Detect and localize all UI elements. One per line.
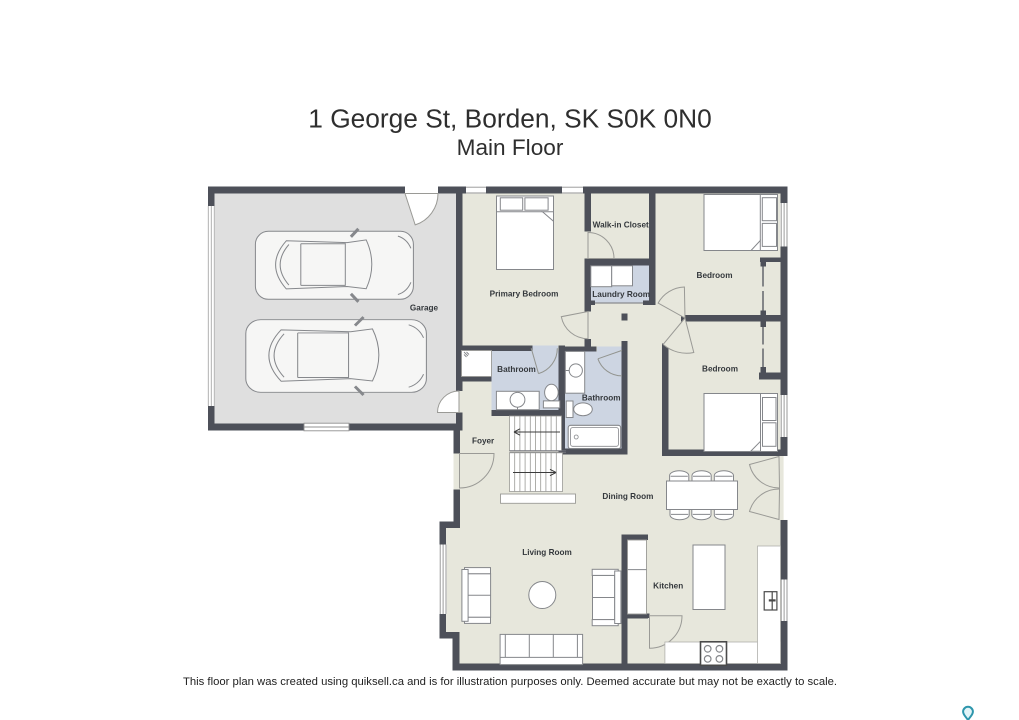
svg-text:Laundry Room: Laundry Room — [592, 290, 650, 299]
svg-text:Garage: Garage — [410, 303, 439, 312]
svg-text:Walk-in Closet: Walk-in Closet — [593, 220, 649, 229]
svg-text:This floor plan was created us: This floor plan was created using quikse… — [183, 676, 837, 688]
svg-text:Bathroom: Bathroom — [582, 393, 621, 402]
svg-text:Living Room: Living Room — [522, 548, 572, 557]
svg-text:Kitchen: Kitchen — [653, 582, 683, 591]
svg-text:Main Floor: Main Floor — [457, 135, 564, 160]
svg-text:Foyer: Foyer — [472, 437, 495, 446]
svg-text:1 George St, Borden, SK S0K 0N: 1 George St, Borden, SK S0K 0N0 — [308, 104, 711, 134]
svg-text:Bedroom: Bedroom — [702, 365, 738, 374]
svg-text:Bedroom: Bedroom — [697, 271, 733, 280]
svg-text:Bathroom: Bathroom — [497, 365, 536, 374]
svg-text:Dining Room: Dining Room — [602, 492, 653, 501]
svg-text:Primary Bedroom: Primary Bedroom — [490, 289, 559, 298]
